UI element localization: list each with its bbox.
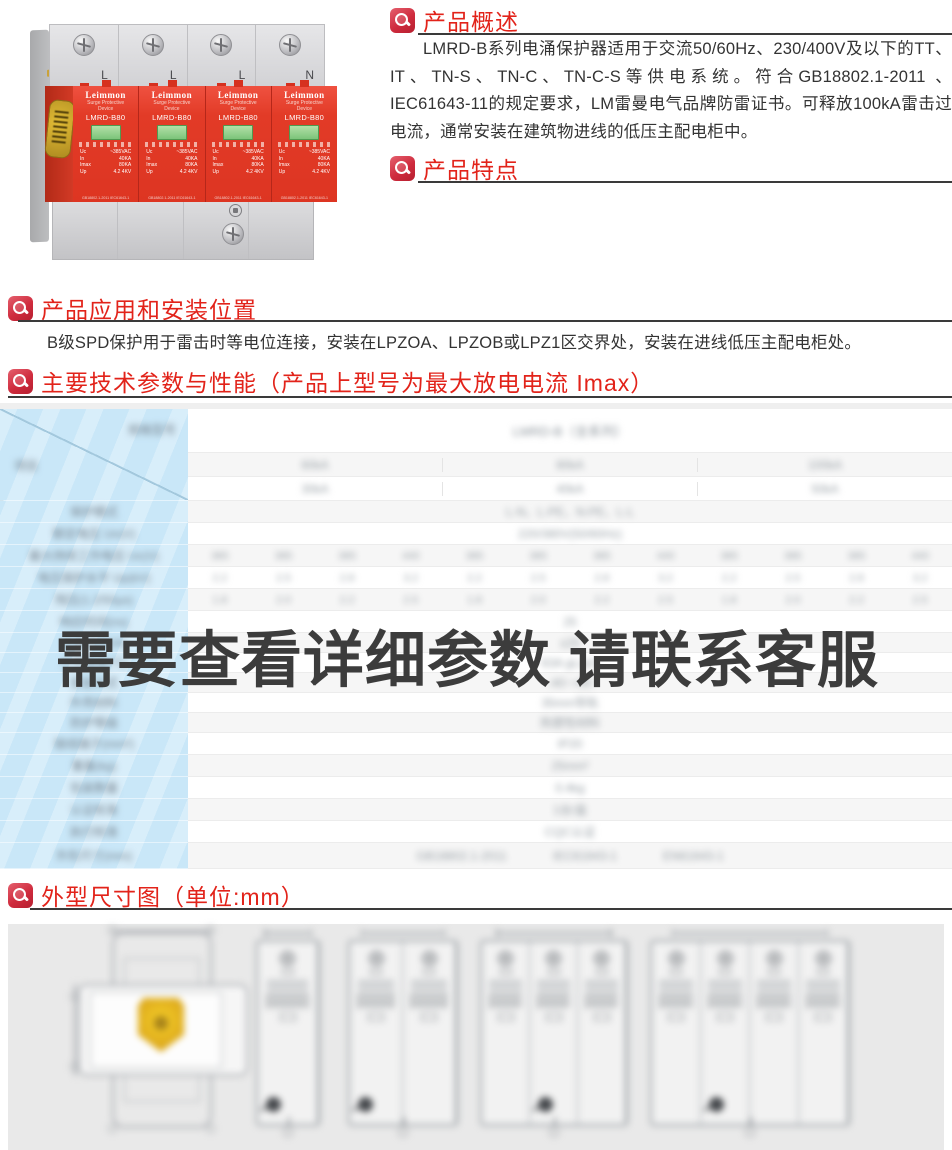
module-brand-text: Leimmon bbox=[139, 90, 204, 100]
module-specs: Uc~385VACIn40KAImax80KAUp4.2 4KV bbox=[213, 149, 264, 175]
table-cell-blurred: 1台/盒 bbox=[188, 801, 952, 818]
terminal-clamp bbox=[282, 969, 294, 975]
lower-clamp bbox=[498, 1013, 514, 1021]
contact-service-overlay-text: 需要查看详细参数 请联系客服 bbox=[0, 610, 934, 699]
label-line bbox=[806, 987, 840, 989]
table-cell-blurred: 3.2 bbox=[634, 572, 698, 584]
module-tab bbox=[300, 80, 309, 87]
label-text: 认证标准 bbox=[70, 801, 118, 818]
table-cell-blurred: 3.2 bbox=[888, 572, 952, 584]
certification-mark-icon bbox=[229, 204, 242, 217]
table-row: 2.22.52.83.22.22.52.83.22.22.52.83.2 bbox=[188, 567, 952, 589]
module-column bbox=[750, 942, 799, 1124]
dimension-line bbox=[496, 932, 611, 934]
bottom-stem-circle bbox=[283, 1127, 293, 1137]
table-cell-blurred: 2.2 bbox=[443, 572, 507, 584]
label-text: 接线端子(mm²) bbox=[54, 735, 134, 752]
section-header-parameters: 主要技术参数与性能（产品上型号为最大放电电流 Imax） bbox=[8, 364, 654, 398]
lower-clamp bbox=[368, 1013, 384, 1021]
dimension-line bbox=[112, 930, 212, 932]
table-cell-blurred: 385 bbox=[443, 550, 507, 562]
module-spec-line: Up4.2 4KV bbox=[213, 169, 264, 176]
terminal-circle bbox=[816, 951, 831, 966]
cell-text: 2.2 bbox=[722, 572, 737, 584]
terminal-clamp bbox=[548, 969, 560, 975]
module-tab bbox=[234, 80, 243, 87]
terminal-circle bbox=[422, 951, 437, 966]
spec-grid bbox=[266, 993, 308, 1009]
plan-view-drawing bbox=[78, 932, 248, 1138]
module-column bbox=[652, 942, 701, 1124]
bottom-stem bbox=[554, 1117, 556, 1126]
stamp-mark bbox=[538, 1097, 553, 1112]
module-outline bbox=[256, 940, 320, 1126]
cell-text: 100kA bbox=[808, 458, 842, 472]
spec-grid bbox=[757, 993, 792, 1009]
spec-value: 4.2 4KV bbox=[113, 169, 131, 176]
divider bbox=[8, 396, 952, 398]
cell-text: 2.8 bbox=[849, 572, 864, 584]
module-icon-row bbox=[79, 142, 132, 147]
table-row: GB18802.1-2011IEC61643-1EN61643-1 bbox=[188, 843, 952, 869]
module-icon-row bbox=[212, 142, 265, 147]
cell-text: 220/380V(50/60Hz) bbox=[518, 527, 622, 541]
corner-bottom-label-blurred: 项目 bbox=[14, 457, 38, 474]
magnifier-icon bbox=[390, 156, 415, 181]
module-tab bbox=[168, 80, 177, 87]
lower-clamp bbox=[717, 1013, 733, 1021]
base-cell bbox=[53, 202, 118, 259]
module-model-text: LMRD-B80 bbox=[272, 113, 337, 122]
terminal-clamp bbox=[500, 969, 512, 975]
table-cell-blurred: 385 bbox=[825, 550, 889, 562]
table-cell-blurred: 385 bbox=[761, 550, 825, 562]
table-cell-blurred: IP20 bbox=[188, 737, 952, 751]
section-title: 产品特点 bbox=[423, 151, 519, 185]
table-row-label-blurred: 外形尺寸(mm) bbox=[0, 843, 188, 869]
cell-text: 2.2 bbox=[340, 594, 355, 606]
cell-text: 60kA bbox=[301, 458, 328, 472]
table-cell-blurred: LMRD-B（全系列） bbox=[188, 421, 952, 440]
table-cell-blurred: GB18802.1-2011 bbox=[416, 849, 507, 863]
magnifier-icon bbox=[8, 369, 33, 394]
label-line bbox=[537, 987, 570, 989]
table-cell-blurred: 2.5 bbox=[761, 572, 825, 584]
overview-paragraph: LMRD-B系列电涌保护器适用于交流50/60Hz、230/400V及以下的TT… bbox=[390, 36, 952, 146]
screw-slot bbox=[83, 38, 85, 52]
table-row: LMRD-B（全系列） bbox=[188, 409, 952, 453]
module-standard-text: GB18802.1-2011 IEC61643-1 bbox=[73, 196, 138, 200]
table-cell-blurred: 385 bbox=[506, 550, 570, 562]
table-cell-blurred: IEC61643-1 bbox=[553, 849, 617, 863]
cell-text: GB18802.1-2011 bbox=[416, 849, 507, 863]
table-cell-blurred: 2.2 bbox=[570, 594, 634, 606]
base-cell bbox=[184, 202, 249, 259]
table-cell-blurred: 2.2 bbox=[825, 594, 889, 606]
module-brand-text: Leimmon bbox=[73, 90, 138, 100]
section-header-features: 产品特点 bbox=[390, 151, 519, 185]
terminal-clamp bbox=[719, 969, 731, 975]
cell-text: L-N、L-PE、N-PE、L-L bbox=[506, 505, 634, 519]
table-cell-blurred: L-N、L-PE、N-PE、L-L bbox=[188, 503, 952, 520]
module-tab bbox=[102, 80, 111, 87]
cell-text: 2.2 bbox=[849, 594, 864, 606]
dimension-line bbox=[264, 932, 312, 934]
terminal-clamp bbox=[370, 969, 382, 975]
table-row-label-blurred: 最大持续工作电压 Uc(V) bbox=[0, 545, 188, 567]
terminal-circle bbox=[369, 951, 384, 966]
table-cell-blurred: 2.5 bbox=[252, 572, 316, 584]
spec-key: Up bbox=[80, 169, 86, 176]
status-window-green bbox=[289, 125, 319, 140]
table-cell-blurred: 2.0 bbox=[506, 594, 570, 606]
lower-clamp bbox=[668, 1013, 684, 1021]
table-row: 25mm² bbox=[188, 755, 952, 777]
module-icon-row bbox=[278, 142, 331, 147]
section-title: 产品概述 bbox=[423, 3, 519, 37]
table-cell-blurred: 1.8 bbox=[188, 594, 252, 606]
table-row: 60kA80kA100kA bbox=[188, 453, 952, 477]
spd-module: LeimmonSurge ProtectiveDeviceLMRD-B80Uc~… bbox=[139, 86, 205, 202]
terminal-clamp bbox=[670, 969, 682, 975]
module-column bbox=[799, 942, 848, 1124]
terminal-clamp bbox=[817, 969, 829, 975]
table-row: 0.4kg bbox=[188, 777, 952, 799]
section-header-overview: 产品概述 bbox=[390, 3, 519, 37]
magnifier-icon bbox=[390, 8, 415, 33]
cell-text: 2.0 bbox=[786, 594, 801, 606]
label-line bbox=[411, 981, 447, 983]
module-outline bbox=[480, 940, 628, 1126]
cell-text: 1台/盒 bbox=[553, 803, 587, 817]
cell-text: 80kA bbox=[556, 458, 583, 472]
dimension-line bbox=[74, 984, 76, 1076]
divider bbox=[30, 908, 952, 910]
magnifier-icon bbox=[8, 296, 33, 321]
table-row-label-blurred: 执行标准 bbox=[0, 821, 188, 843]
module-column bbox=[403, 942, 456, 1124]
table-row-label-blurred: 电压保护水平 Up(kV) bbox=[0, 567, 188, 589]
spec-grid bbox=[489, 993, 523, 1009]
cell-text: 1.8 bbox=[213, 594, 228, 606]
section-title: 外型尺寸图（单位:mm） bbox=[41, 878, 305, 912]
spec-key: Up bbox=[279, 169, 285, 176]
table-row: 385385385440385385385440385385385440 bbox=[188, 545, 952, 567]
module-standard-text: GB18802.1-2011 IEC61643-1 bbox=[139, 196, 204, 200]
label-text: 保护模式 bbox=[70, 503, 118, 520]
cell-text: 2.0 bbox=[531, 594, 546, 606]
terminal-clamp bbox=[423, 969, 435, 975]
table-cell-blurred: 2.0 bbox=[761, 594, 825, 606]
label-text: 重量(kg) bbox=[72, 757, 117, 774]
label-line bbox=[585, 981, 618, 983]
lower-clamp bbox=[594, 1013, 610, 1021]
module-column bbox=[482, 942, 530, 1124]
table-row: 1台/盒 bbox=[188, 799, 952, 821]
module-icon-row bbox=[145, 142, 198, 147]
module-subtitle: Device bbox=[73, 106, 138, 112]
divider bbox=[418, 33, 952, 35]
base-cell bbox=[118, 202, 183, 259]
terminal-circle bbox=[546, 951, 561, 966]
cell-text: 1.8 bbox=[467, 594, 482, 606]
table-cell-blurred: 100kA bbox=[697, 458, 952, 472]
label-text: 防护等级 bbox=[70, 714, 118, 731]
label-line bbox=[358, 987, 394, 989]
product-photo: LLLN LeimmonSurge ProtectiveDeviceLMRD-B… bbox=[28, 18, 343, 258]
label-line bbox=[267, 987, 308, 989]
table-cell-blurred: 2.2 bbox=[315, 594, 379, 606]
terminal-cell: L bbox=[50, 25, 119, 86]
table-row: L-N、L-PE、N-PE、L-L bbox=[188, 501, 952, 523]
module-spec-line: Up4.2 4KV bbox=[279, 169, 330, 176]
base-cell bbox=[249, 202, 313, 259]
magnifier-icon bbox=[8, 883, 33, 908]
corner-top-label-blurred: 规格型号 bbox=[128, 421, 176, 438]
screw-slot bbox=[232, 227, 234, 241]
table-cell-blurred: 25mm² bbox=[188, 759, 952, 773]
table-cell-blurred: 440 bbox=[634, 550, 698, 562]
terminal-circle bbox=[594, 951, 609, 966]
module-model-text: LMRD-B80 bbox=[206, 113, 271, 122]
cell-text: 2.5 bbox=[658, 594, 673, 606]
label-line bbox=[708, 981, 742, 983]
table-cell-blurred: 2.8 bbox=[825, 572, 889, 584]
spec-grid bbox=[537, 993, 571, 1009]
spec-value: 4.2 4KV bbox=[246, 169, 264, 176]
module-model-text: LMRD-B80 bbox=[73, 113, 138, 122]
module-outline-drawing-3p bbox=[480, 940, 628, 1140]
cell-text: IP20 bbox=[558, 737, 583, 751]
device-modules-row: LeimmonSurge ProtectiveDeviceLMRD-B80Uc~… bbox=[45, 86, 337, 202]
table-cell-blurred: 2.0 bbox=[252, 594, 316, 606]
table-cell-blurred: 2.5 bbox=[379, 594, 443, 606]
table-cell-blurred: 热塑性材料 bbox=[188, 714, 952, 731]
bottom-stem bbox=[750, 1117, 752, 1126]
bottom-stem-circle bbox=[549, 1127, 559, 1137]
label-text: 电压保护水平 Up(kV) bbox=[38, 569, 151, 586]
cell-text: 热塑性材料 bbox=[540, 716, 600, 730]
cell-text: CQC认证 bbox=[545, 825, 596, 839]
table-row-label-blurred: 认证标准 bbox=[0, 799, 188, 821]
bottom-stem-circle bbox=[745, 1127, 755, 1137]
table-row-label-blurred: 防护等级 bbox=[0, 713, 188, 733]
bottom-stem-circle bbox=[398, 1127, 408, 1137]
table-row: CQC认证 bbox=[188, 821, 952, 843]
table-cell-blurred: 440 bbox=[888, 550, 952, 562]
module-column bbox=[350, 942, 403, 1124]
label-line bbox=[757, 981, 791, 983]
cell-text: 385 bbox=[784, 550, 802, 562]
table-row-label-blurred: 包装数量 bbox=[0, 777, 188, 799]
label-line bbox=[806, 981, 840, 983]
table-cell-blurred: 220/380V(50/60Hz) bbox=[188, 527, 952, 541]
module-subtitle: Device bbox=[272, 106, 337, 112]
label-line bbox=[659, 987, 693, 989]
cell-text: 385 bbox=[466, 550, 484, 562]
screw-icon bbox=[142, 34, 164, 56]
table-cell-blurred: 385 bbox=[697, 550, 761, 562]
module-specs: Uc~385VACIn40KAImax80KAUp4.2 4KV bbox=[80, 149, 131, 175]
section-header-dimensions: 外型尺寸图（单位:mm） bbox=[8, 878, 305, 912]
module-subtitle: Device bbox=[206, 106, 271, 112]
table-cell-blurred: 2.5 bbox=[506, 572, 570, 584]
module-standard-text: GB18802.1-2011 IEC61643-1 bbox=[272, 196, 337, 200]
device-bottom-base bbox=[52, 202, 314, 260]
table-cell-blurred: 3.2 bbox=[379, 572, 443, 584]
application-paragraph: B级SPD保护用于雷击时等电位连接，安装在LPZOA、LPZOB或LPZ1区交界… bbox=[14, 330, 952, 356]
table-row-label-blurred: 残压(1.2/50μs) bbox=[0, 589, 188, 611]
yellow-barcode-label bbox=[44, 99, 76, 159]
table-row: 热塑性材料 bbox=[188, 713, 952, 733]
cell-text: 385 bbox=[593, 550, 611, 562]
module-column bbox=[258, 942, 318, 1124]
table-row: 30kA40kA50kA bbox=[188, 477, 952, 501]
module-brand-text: Leimmon bbox=[272, 90, 337, 100]
divider bbox=[418, 181, 952, 183]
spec-grid bbox=[410, 993, 447, 1009]
module-spec-line: Up4.2 4KV bbox=[146, 169, 197, 176]
cell-text: 385 bbox=[720, 550, 738, 562]
table-row-label-blurred: 接线端子(mm²) bbox=[0, 733, 188, 755]
table-cell-blurred: 2.5 bbox=[888, 594, 952, 606]
table-cell-blurred: 385 bbox=[315, 550, 379, 562]
device-top-terminals: LLLN bbox=[49, 24, 325, 86]
screw-slot bbox=[152, 38, 154, 52]
spec-value: 4.2 4KV bbox=[180, 169, 198, 176]
label-text: 残压(1.2/50μs) bbox=[55, 591, 133, 608]
parameters-table-blurred: 规格型号项目保护模式额定电压 Un(V)最大持续工作电压 Uc(V)电压保护水平… bbox=[0, 403, 952, 873]
cell-text: 2.8 bbox=[595, 572, 610, 584]
cell-text: 385 bbox=[338, 550, 356, 562]
cell-text: EN61643-1 bbox=[663, 849, 724, 863]
cell-text: 50kA bbox=[811, 482, 838, 496]
cell-text: 385 bbox=[275, 550, 293, 562]
table-cell-blurred: 2.2 bbox=[697, 572, 761, 584]
table-row: 220/380V(50/60Hz) bbox=[188, 523, 952, 545]
lower-clamp bbox=[815, 1013, 831, 1021]
table-cell-blurred: 2.2 bbox=[188, 572, 252, 584]
cell-text: 385 bbox=[211, 550, 229, 562]
label-text: 执行标准 bbox=[70, 823, 118, 840]
lower-clamp bbox=[280, 1013, 296, 1021]
cell-text: 40kA bbox=[556, 482, 583, 496]
cell-text: 30kA bbox=[301, 482, 328, 496]
device-side-panel bbox=[45, 86, 73, 202]
status-window-green bbox=[223, 125, 253, 140]
table-corner-cell: 规格型号项目 bbox=[0, 409, 188, 501]
dimension-tick bbox=[206, 1124, 215, 1133]
table-cell-blurred: 385 bbox=[252, 550, 316, 562]
table-row: 1.82.02.22.51.82.02.22.51.82.02.22.5 bbox=[188, 589, 952, 611]
table-cell-blurred: 40kA bbox=[442, 482, 697, 496]
spec-grid bbox=[357, 993, 394, 1009]
spec-key: Up bbox=[213, 169, 219, 176]
cell-text: 3.2 bbox=[913, 572, 928, 584]
module-column bbox=[578, 942, 626, 1124]
table-row: IP20 bbox=[188, 733, 952, 755]
terminal-circle bbox=[498, 951, 513, 966]
module-standard-text: GB18802.1-2011 IEC61643-1 bbox=[206, 196, 271, 200]
label-text: 外形尺寸(mm) bbox=[56, 847, 132, 864]
label-line bbox=[411, 987, 447, 989]
spec-value: 4.2 4KV bbox=[312, 169, 330, 176]
stamp-mark bbox=[266, 1097, 281, 1112]
label-line bbox=[358, 981, 394, 983]
terminal-clamp bbox=[596, 969, 608, 975]
cell-text: 3.2 bbox=[658, 572, 673, 584]
label-line bbox=[708, 987, 742, 989]
table-cell-blurred: EN61643-1 bbox=[663, 849, 724, 863]
product-datasheet-page: LLLN LeimmonSurge ProtectiveDeviceLMRD-B… bbox=[0, 0, 952, 1150]
module-specs: Uc~385VACIn40KAImax80KAUp4.2 4KV bbox=[146, 149, 197, 175]
table-cell-blurred: 30kA bbox=[188, 482, 442, 496]
terminal-circle bbox=[669, 951, 684, 966]
terminal-cell: L bbox=[119, 25, 188, 86]
table-cell-blurred: 2.8 bbox=[315, 572, 379, 584]
cell-text: 2.2 bbox=[213, 572, 228, 584]
module-specs: Uc~385VACIn40KAImax80KAUp4.2 4KV bbox=[279, 149, 330, 175]
table-cell-blurred: 1.8 bbox=[697, 594, 761, 606]
lower-clamp bbox=[421, 1013, 437, 1021]
screw-icon bbox=[222, 223, 244, 245]
module-subtitle: Device bbox=[139, 106, 204, 112]
cell-text: 2.2 bbox=[467, 572, 482, 584]
label-line bbox=[585, 987, 618, 989]
table-cell-blurred: 1.8 bbox=[443, 594, 507, 606]
cell-text: 3.2 bbox=[404, 572, 419, 584]
cell-text: 2.5 bbox=[404, 594, 419, 606]
table-cell-blurred: 0.4kg bbox=[188, 781, 952, 795]
module-model-text: LMRD-B80 bbox=[139, 113, 204, 122]
module-column bbox=[701, 942, 750, 1124]
label-line bbox=[489, 987, 522, 989]
spec-grid bbox=[708, 993, 743, 1009]
table-row-label-blurred: 重量(kg) bbox=[0, 755, 188, 777]
spd-module: LeimmonSurge ProtectiveDeviceLMRD-B80Uc~… bbox=[73, 86, 139, 202]
cell-text: 2.5 bbox=[913, 594, 928, 606]
label-text: 额定电压 Un(V) bbox=[53, 525, 136, 542]
table-cell-blurred: 440 bbox=[379, 550, 443, 562]
terminal-clamp bbox=[768, 969, 780, 975]
table-cell-blurred: 385 bbox=[188, 550, 252, 562]
bottom-stem bbox=[403, 1117, 405, 1126]
cell-text: 2.5 bbox=[531, 572, 546, 584]
spec-grid bbox=[806, 993, 841, 1009]
spd-module: LeimmonSurge ProtectiveDeviceLMRD-B80Uc~… bbox=[272, 86, 337, 202]
cell-text: LMRD-B（全系列） bbox=[513, 424, 628, 439]
cell-text: 0.4kg bbox=[555, 781, 584, 795]
cell-text: 1.8 bbox=[722, 594, 737, 606]
lower-clamp bbox=[766, 1013, 782, 1021]
table-row-label-blurred: 保护模式 bbox=[0, 501, 188, 523]
terminal-cell: N bbox=[256, 25, 324, 86]
cell-text: 385 bbox=[529, 550, 547, 562]
label-line bbox=[537, 981, 570, 983]
label-line bbox=[659, 981, 693, 983]
dimension-line bbox=[361, 932, 446, 934]
section-title: 主要技术参数与性能（产品上型号为最大放电电流 Imax） bbox=[41, 364, 654, 398]
cell-text: 2.8 bbox=[340, 572, 355, 584]
label-text: 包装数量 bbox=[70, 779, 118, 796]
status-window-green bbox=[91, 125, 121, 140]
stamp-mark bbox=[709, 1097, 724, 1112]
status-window-green bbox=[157, 125, 187, 140]
cell-text: 2.2 bbox=[595, 594, 610, 606]
cell-text: 440 bbox=[402, 550, 420, 562]
spec-grid bbox=[659, 993, 694, 1009]
dimension-line bbox=[672, 932, 829, 934]
